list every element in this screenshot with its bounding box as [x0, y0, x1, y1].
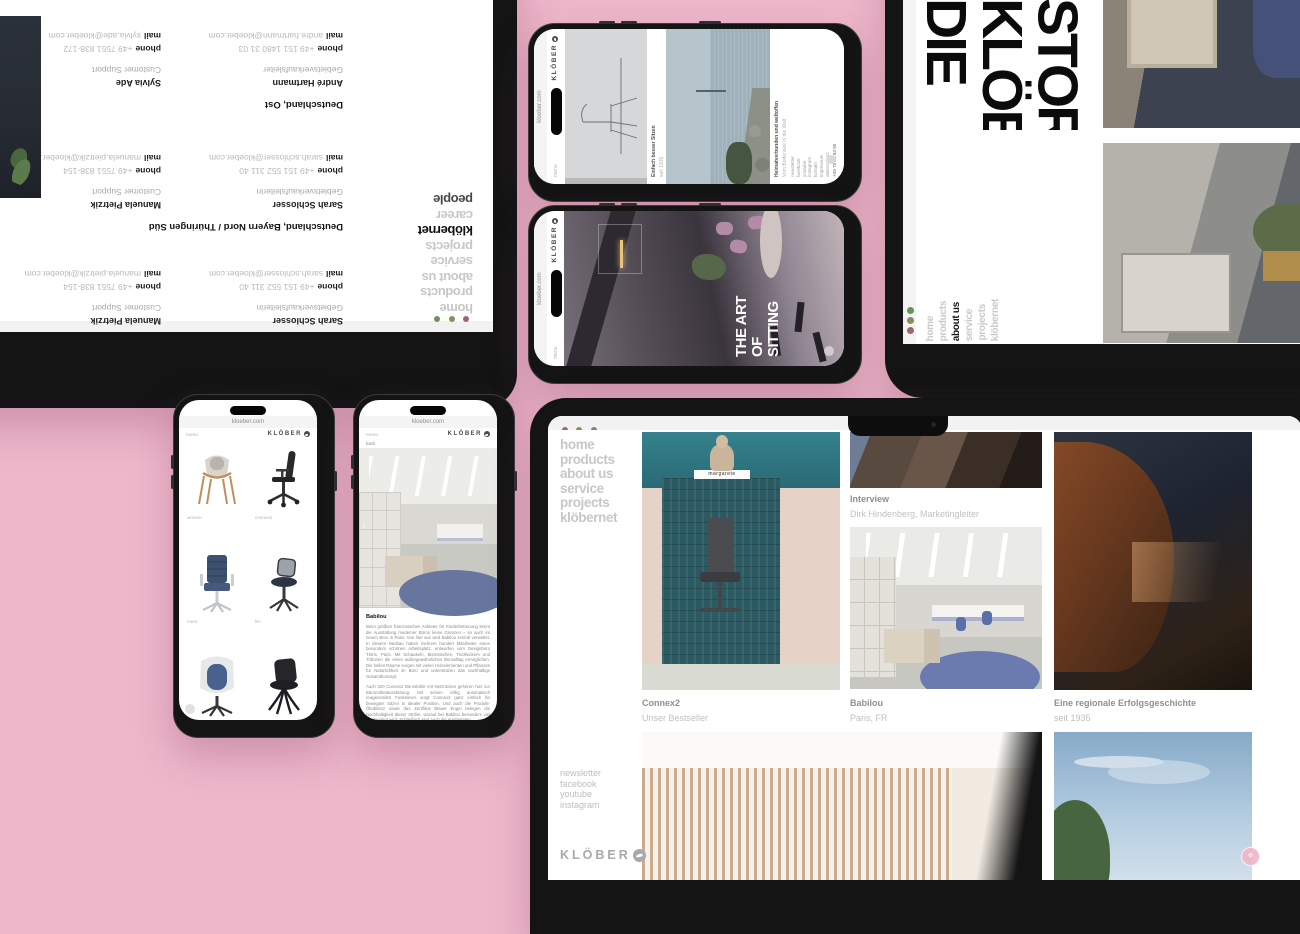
product-card[interactable]: [187, 652, 247, 720]
region-header: Deutschland, Ost: [265, 99, 343, 110]
camera-notch: [848, 416, 948, 436]
nav-item[interactable]: service: [560, 482, 617, 497]
card-caption[interactable]: Connex2 Unser Bestseller: [642, 698, 708, 723]
kloeber-logo[interactable]: KLÖBER: [551, 218, 558, 262]
story-headline: DIEKLÖBERSTORY: [921, 0, 1081, 130]
image-caption: Einfach besser Sitzen seit 1935: [651, 125, 665, 177]
contact-name: Manuela Pietrzik: [0, 316, 161, 326]
phone-screen: kloeber.com menu KLÖBER wooom: [179, 400, 317, 720]
window: [1121, 253, 1231, 333]
plant: [692, 254, 726, 280]
hero-office-photo: THE ARTOFSITTING: [564, 211, 844, 366]
contact-name: Sarah Schlosser: [171, 316, 343, 326]
sidebar-nav-item[interactable]: products: [418, 285, 473, 301]
window-zoom-button[interactable]: [434, 316, 440, 322]
picture-frame: [1127, 0, 1217, 68]
kloeber-logo[interactable]: KLÖBER: [551, 36, 558, 80]
product-card[interactable]: connex2: [255, 446, 315, 520]
window-minimize-button[interactable]: [449, 316, 455, 322]
camera-dot: [931, 422, 936, 427]
tablet-device-story: homeproductsabout usserviceprojectsklöbe…: [885, 0, 1300, 398]
sidebar-nav: homeproductsabout usserviceprojectsklöbe…: [418, 192, 473, 316]
story-photo-person: [1103, 0, 1300, 128]
volume-down-button[interactable]: [621, 203, 637, 206]
product-label: mera: [187, 619, 247, 624]
cookie-settings-button[interactable]: ⚙: [1241, 847, 1260, 866]
footer-links: newsletterfacebookyoutubeinstagramkontak…: [790, 152, 831, 177]
mail-link[interactable]: sarah.schlosser@kloeber.com: [209, 153, 323, 163]
tablet-screen: homeproductsabout usserviceprojectsklöbe…: [903, 0, 1300, 344]
chair-mera-image: [187, 550, 247, 616]
footer-links: newsletterfacebookyoutubeinstagram: [560, 768, 601, 810]
phone-device-babilou: kloeber.com menu back KLÖBER ‹ Babilou B…: [353, 394, 515, 738]
contact-role: Gebietsverkaufsleiter: [171, 65, 343, 75]
product-card[interactable]: mera: [187, 550, 247, 624]
tablet-device-home: homeproductsabout usserviceprojectsklöbe…: [530, 398, 1300, 934]
sidebar-nav-item[interactable]: about us: [418, 270, 473, 286]
contact-role: Gebietsverkaufsleiterin: [171, 187, 343, 197]
reference-heading: Babilou: [366, 614, 387, 620]
dynamic-island: [410, 406, 446, 415]
contact-card[interactable]: Manuela Pietrzik Customer Support phone+…: [0, 269, 161, 326]
phone-device-landscape-about: kloeber.com menu KLÖBER Einfach besser S…: [528, 23, 862, 202]
product-card[interactable]: [255, 652, 315, 720]
phone-screen: kloeber.com menu back KLÖBER ‹ Babilou B…: [359, 400, 497, 720]
card-babilou-image[interactable]: [850, 527, 1042, 689]
menu-button[interactable]: menu: [186, 433, 198, 438]
browser-url-bar[interactable]: kloeber.com: [534, 211, 547, 366]
volume-up-button[interactable]: [599, 203, 615, 206]
main-nav: homeproductsabout usserviceprojectsklöbe…: [560, 438, 617, 525]
footer-link[interactable]: impressum: [819, 152, 825, 177]
menu-button[interactable]: menu: [553, 164, 559, 177]
tree: [1054, 800, 1110, 880]
contact-role: Customer Support: [0, 303, 161, 313]
contact-name: André Hartmann: [171, 78, 343, 88]
brass-planter: [1263, 251, 1300, 281]
power-button[interactable]: [699, 203, 721, 206]
menu-button[interactable]: menu: [366, 433, 378, 438]
card-woodslat-image[interactable]: [642, 732, 1042, 880]
scroll-top-button[interactable]: [185, 704, 195, 714]
kloeber-logo-mark: [552, 36, 558, 42]
footer-link[interactable]: newsletter: [560, 768, 601, 779]
laptop-screen: homeproductsabout usserviceprojectsklöbe…: [0, 0, 493, 332]
footer-link[interactable]: facebook: [560, 779, 601, 790]
dynamic-island: [551, 270, 562, 317]
sidebar-nav-item[interactable]: home: [418, 301, 473, 317]
chair-line-drawing: [565, 29, 647, 184]
phone-link[interactable]: +49 7551 838-172: [63, 44, 132, 54]
hero-headline: THE ARTOFSITTING: [734, 296, 782, 357]
sidebar-nav-item[interactable]: klöbernet: [418, 223, 473, 239]
chair-wooom-image: [187, 446, 247, 512]
mail-link[interactable]: sarah.schlosser@kloeber.com: [209, 269, 323, 279]
phone-link[interactable]: +49 151 552 311 40: [239, 282, 314, 292]
mail-link[interactable]: andre.hartmann@kloeber.com: [209, 31, 323, 41]
volume-down-button[interactable]: [351, 475, 354, 489]
bust-label: margarete: [694, 470, 750, 479]
kloeber-logo-mark: [633, 849, 646, 862]
lake-bodensee-photo: [666, 29, 770, 184]
browser-url-bar[interactable]: kloeber.com: [359, 416, 497, 428]
card-interview-image[interactable]: [850, 432, 1042, 488]
product-label: lim: [255, 619, 315, 624]
phone-device-landscape-hero: kloeber.com menu KLÖBER THE ARTOFSIT: [528, 205, 862, 384]
product-card[interactable]: lim: [255, 550, 315, 624]
browser-url-bar[interactable]: kloeber.com: [179, 416, 317, 428]
chair-sketch-image: [565, 29, 647, 184]
card-erfolg-image[interactable]: [1054, 432, 1252, 690]
phone-screen: kloeber.com menu KLÖBER Einfach besser S…: [534, 29, 844, 184]
sidebar-nav-item[interactable]: service: [418, 254, 473, 270]
plant-decoration: [2, 140, 42, 187]
carousel-prev-arrow[interactable]: ‹: [362, 520, 365, 531]
window-zoom-button[interactable]: [907, 307, 914, 314]
mail-link[interactable]: manuela.pietrzik@kloeber.com: [25, 269, 141, 279]
reference-paragraph: Auch 320 Connex2 Bürostühle mit Netzrück…: [366, 684, 490, 720]
phone-link[interactable]: +49 151 552 311 40: [239, 166, 314, 176]
nav-item[interactable]: home: [925, 316, 936, 341]
kloeber-logo[interactable]: KLÖBER: [448, 431, 490, 437]
contact-name: Sarah Schlosser: [171, 200, 343, 210]
image-caption: Heimatverbunden und weltoffen Vom Bodens…: [774, 101, 788, 177]
dynamic-island: [551, 88, 562, 135]
bust-sculpture: [710, 444, 734, 471]
reference-paragraph: Beim größten französischen Anbieter für …: [366, 624, 490, 679]
power-button[interactable]: [514, 471, 517, 491]
kloeber-logo-mark: [304, 431, 310, 437]
card-caption[interactable]: Babilou Paris, FR: [850, 698, 888, 723]
kloeber-logo-mark: [552, 218, 558, 224]
nav-item[interactable]: products: [938, 301, 949, 341]
scroll-top-button[interactable]: [824, 346, 834, 356]
nav-item[interactable]: klöbernet: [560, 511, 617, 526]
tablet-screen: homeproductsabout usserviceprojectsklöbe…: [548, 416, 1300, 880]
volume-up-button[interactable]: [599, 21, 615, 24]
volume-up-button[interactable]: [351, 455, 354, 469]
contact-card[interactable]: Sarah Schlosser Gebietsverkaufsleiterin …: [171, 269, 343, 326]
babilou-office-photo: ‹: [359, 448, 497, 608]
volume-down-button[interactable]: [171, 475, 174, 489]
product-label: connex2: [255, 515, 315, 520]
browser-url-bar[interactable]: kloeber.com: [534, 29, 547, 184]
phone-link[interactable]: +49 7551 838-154: [63, 166, 132, 176]
sidebar-nav-item[interactable]: projects: [418, 239, 473, 255]
browser-chrome: [903, 0, 916, 344]
phone-link[interactable]: +49 151 1480 31 03: [239, 44, 315, 54]
card-caption[interactable]: Eine regionale Erfolgsgeschichte seit 19…: [1054, 698, 1196, 723]
nav-item[interactable]: home: [560, 438, 617, 453]
nav-item[interactable]: about us: [560, 467, 617, 482]
kloeber-logo-mark: [484, 431, 490, 437]
contact-name: Manuela Pietrzik: [0, 200, 161, 210]
nav-item[interactable]: projects: [560, 496, 617, 511]
nav-item[interactable]: service: [964, 309, 975, 341]
trees: [726, 142, 752, 184]
phone-device-products: kloeber.com menu KLÖBER wooom: [173, 394, 335, 738]
scroll-top-button[interactable]: [827, 155, 836, 164]
contact-card[interactable]: André Hartmann Gebietsverkaufsleiter pho…: [171, 31, 343, 88]
volume-up-button[interactable]: [171, 455, 174, 469]
kloeber-footer-logo[interactable]: KLÖBER: [560, 848, 646, 862]
footer-link[interactable]: newsletter: [790, 152, 796, 177]
product-card[interactable]: wooom: [187, 446, 247, 520]
volume-down-button[interactable]: [621, 21, 637, 24]
office-plant-photo: [0, 16, 41, 198]
back-button[interactable]: back: [366, 441, 375, 446]
footer-link[interactable]: youtube: [560, 789, 601, 800]
footer-link[interactable]: instagram: [560, 800, 601, 811]
card-connex2-image[interactable]: margarete: [642, 432, 840, 690]
phone-link[interactable]: +49 7551 838-154: [63, 282, 132, 292]
window-close-button[interactable]: [463, 316, 469, 322]
product-label: wooom: [187, 515, 247, 520]
contact-card[interactable]: Sarah Schlosser Gebietsverkaufsleiterin …: [171, 153, 343, 210]
power-button[interactable]: [699, 21, 721, 24]
sidebar-nav-item[interactable]: people: [418, 192, 473, 208]
sidebar-nav-item[interactable]: career: [418, 208, 473, 224]
kloeber-logo[interactable]: KLÖBER: [268, 431, 310, 437]
chair-lounge-image: [187, 652, 247, 718]
card-caption[interactable]: Interview Dirk Hindenberg, Marketingleit…: [850, 494, 979, 519]
dynamic-island: [230, 406, 266, 415]
nav-item[interactable]: projects: [977, 304, 988, 341]
chair-connex2-image: [255, 446, 315, 512]
contact-role: Gebietsverkaufsleiterin: [171, 303, 343, 313]
pendant-light: [620, 240, 623, 268]
nav-item[interactable]: about us: [951, 302, 962, 341]
power-button[interactable]: [334, 471, 337, 491]
chair-conference-image: [255, 652, 315, 718]
person: [1253, 0, 1300, 78]
menu-button[interactable]: menu: [553, 346, 559, 359]
main-nav: homeproductsabout usserviceprojectsklöbe…: [925, 241, 1001, 341]
nav-item[interactable]: products: [560, 453, 617, 468]
window-minimize-button[interactable]: [907, 317, 914, 324]
laptop-device-flipped: homeproductsabout usserviceprojectsklöbe…: [0, 0, 517, 408]
story-photo-showroom: [1103, 143, 1300, 343]
region-header: Deutschland, Bayern Nord / Thüringen Süd: [149, 221, 343, 232]
mail-link[interactable]: manuela.pietrzik@kloeber.com: [25, 153, 141, 163]
card-sky-image[interactable]: [1054, 732, 1252, 880]
phone-screen: kloeber.com menu KLÖBER THE ARTOFSIT: [534, 211, 844, 366]
nav-item[interactable]: klöbernet: [990, 299, 1001, 341]
chair-lim-image: [255, 550, 315, 616]
mail-link[interactable]: sylvia.ade@kloeber.com: [49, 31, 141, 41]
pier: [696, 91, 726, 93]
window-close-button[interactable]: [907, 327, 914, 334]
